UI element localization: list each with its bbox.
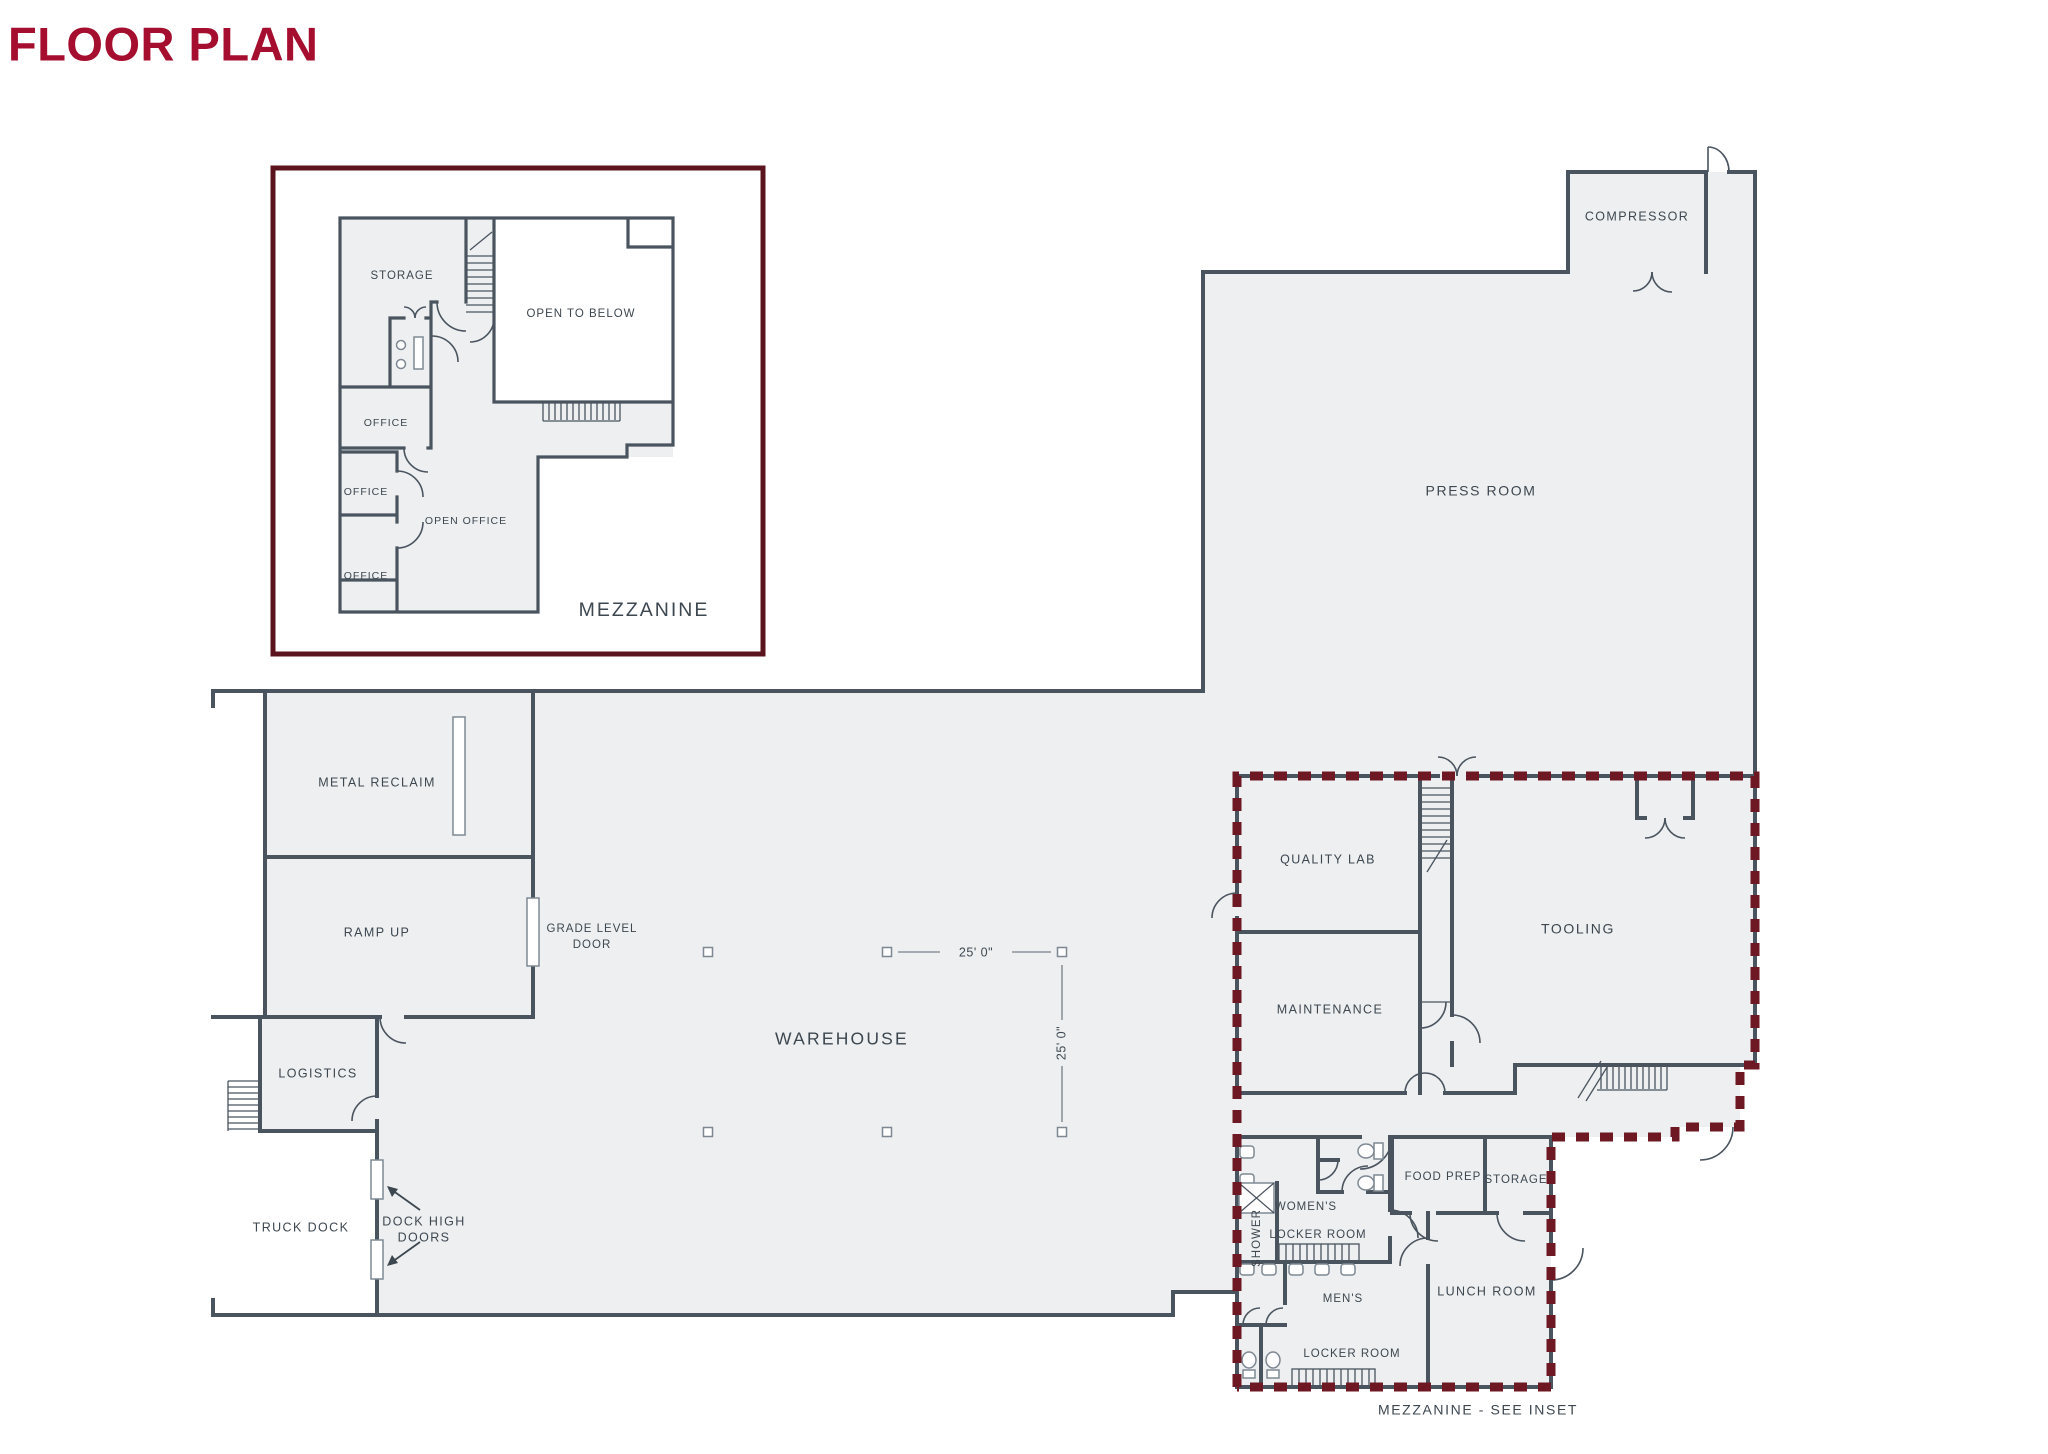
label-compressor: COMPRESSOR — [1585, 209, 1689, 223]
label-truck-dock: TRUCK DOCK — [253, 1220, 350, 1234]
label-warehouse: WAREHOUSE — [775, 1029, 909, 1049]
label-storage-main: STORAGE — [1484, 1174, 1547, 1186]
label-press-room: PRESS ROOM — [1426, 483, 1537, 499]
label-lunch-room: LUNCH ROOM — [1437, 1284, 1536, 1298]
label-tooling: TOOLING — [1541, 921, 1615, 937]
label-ramp-up: RAMP UP — [344, 925, 411, 939]
mezzanine-inset: STORAGE OPEN TO BELOW OFFICE OFFICE OFFI… — [273, 168, 763, 654]
floor-plan-drawing: FLOOR PLAN — [0, 0, 2048, 1454]
page-title: FLOOR PLAN — [8, 17, 318, 70]
label-inset-open-office: OPEN OFFICE — [425, 515, 507, 527]
label-grade-level-door-1: GRADE LEVEL — [547, 923, 638, 935]
label-food-prep: FOOD PREP — [1405, 1171, 1482, 1183]
label-womens: WOMEN'S — [1275, 1201, 1337, 1213]
stair-logistics — [228, 1081, 260, 1131]
floor-plan-page: FLOOR PLAN — [0, 0, 2048, 1454]
dimension-horizontal-label: 25' 0" — [959, 945, 993, 959]
dock-high-door-2 — [371, 1240, 383, 1279]
label-quality-lab: QUALITY LAB — [1280, 852, 1376, 866]
label-logistics: LOGISTICS — [278, 1066, 357, 1080]
label-grade-level-door-2: DOOR — [573, 939, 612, 951]
label-womens-locker-room: LOCKER ROOM — [1269, 1229, 1366, 1241]
shower-stall — [1239, 1183, 1274, 1213]
label-dock-high-doors-1: DOCK HIGH — [382, 1214, 465, 1228]
label-inset-storage: STORAGE — [370, 270, 433, 282]
dimension-vertical-label: 25' 0" — [1054, 1026, 1068, 1060]
label-inset-mezzanine: MEZZANINE — [579, 599, 710, 621]
label-mens-locker-room: LOCKER ROOM — [1303, 1348, 1400, 1360]
label-inset-office-a: OFFICE — [364, 417, 409, 429]
label-inset-open-to-below: OPEN TO BELOW — [526, 308, 635, 320]
label-inset-office-b: OFFICE — [344, 486, 389, 498]
metal-reclaim-rack — [453, 717, 465, 835]
label-shower: SHOWER — [1251, 1209, 1263, 1267]
label-dock-high-doors-2: DOORS — [398, 1230, 451, 1244]
grade-level-door — [527, 898, 539, 966]
label-mens: MEN'S — [1323, 1293, 1363, 1305]
label-mezzanine-note: MEZZANINE - SEE INSET — [1378, 1402, 1578, 1418]
label-maintenance: MAINTENANCE — [1277, 1002, 1383, 1016]
dock-high-door-1 — [371, 1160, 383, 1199]
label-metal-reclaim: METAL RECLAIM — [318, 775, 436, 789]
label-inset-office-c: OFFICE — [344, 570, 389, 582]
